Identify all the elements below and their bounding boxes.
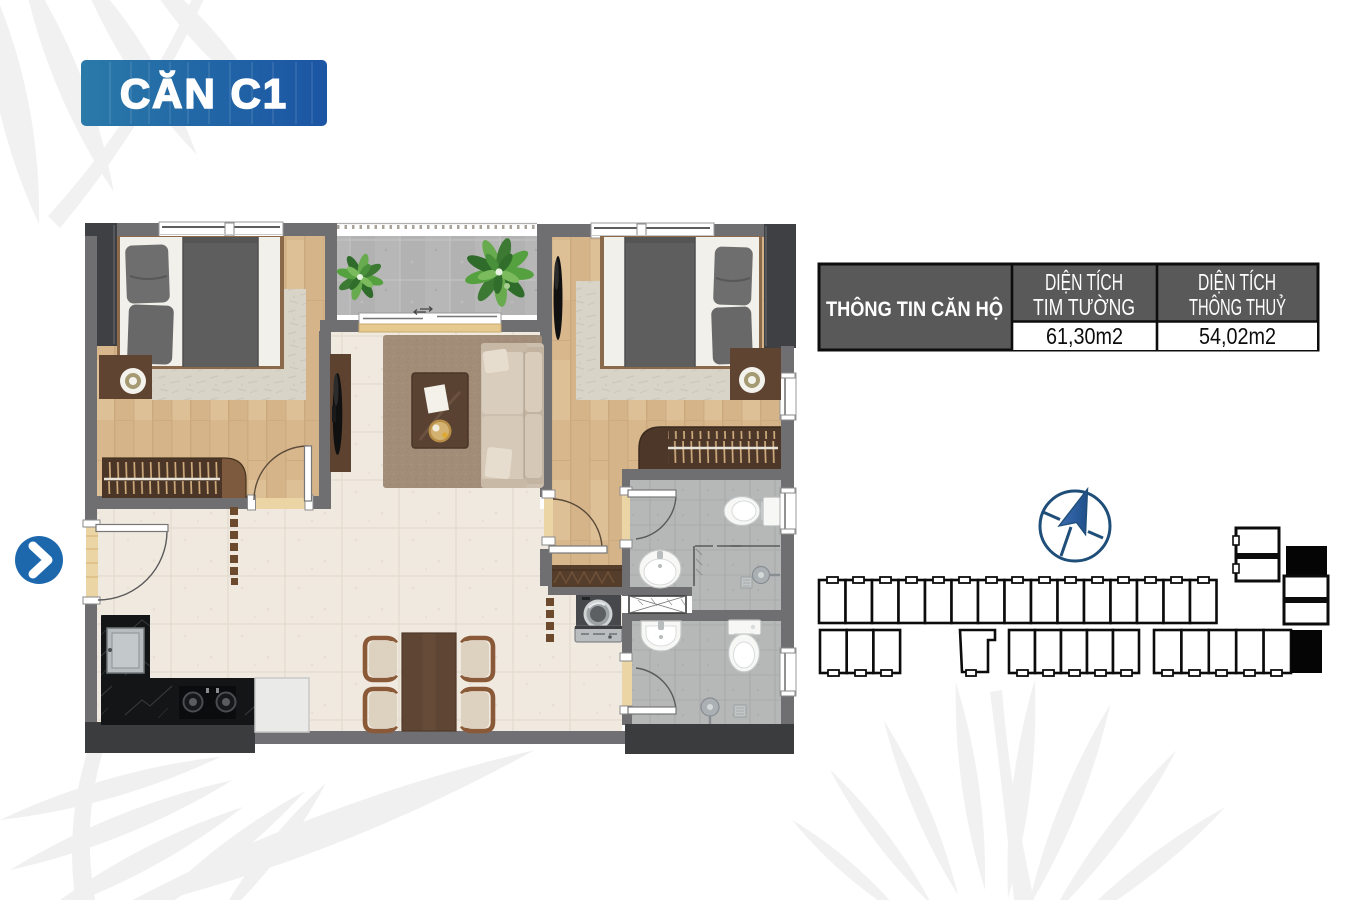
svg-text:61,30m2: 61,30m2 bbox=[1046, 323, 1123, 349]
svg-text:DIỆN TÍCH: DIỆN TÍCH bbox=[1198, 269, 1276, 295]
svg-text:THÔNG TIN CĂN HỘ: THÔNG TIN CĂN HỘ bbox=[826, 296, 1003, 321]
svg-text:THÔNG THUỶ: THÔNG THUỶ bbox=[1189, 292, 1286, 320]
svg-text:TIM TƯỜNG: TIM TƯỜNG bbox=[1033, 294, 1135, 320]
svg-text:54,02m2: 54,02m2 bbox=[1199, 323, 1276, 349]
svg-text:CĂN C1: CĂN C1 bbox=[120, 70, 288, 117]
svg-text:DIỆN TÍCH: DIỆN TÍCH bbox=[1045, 269, 1123, 295]
